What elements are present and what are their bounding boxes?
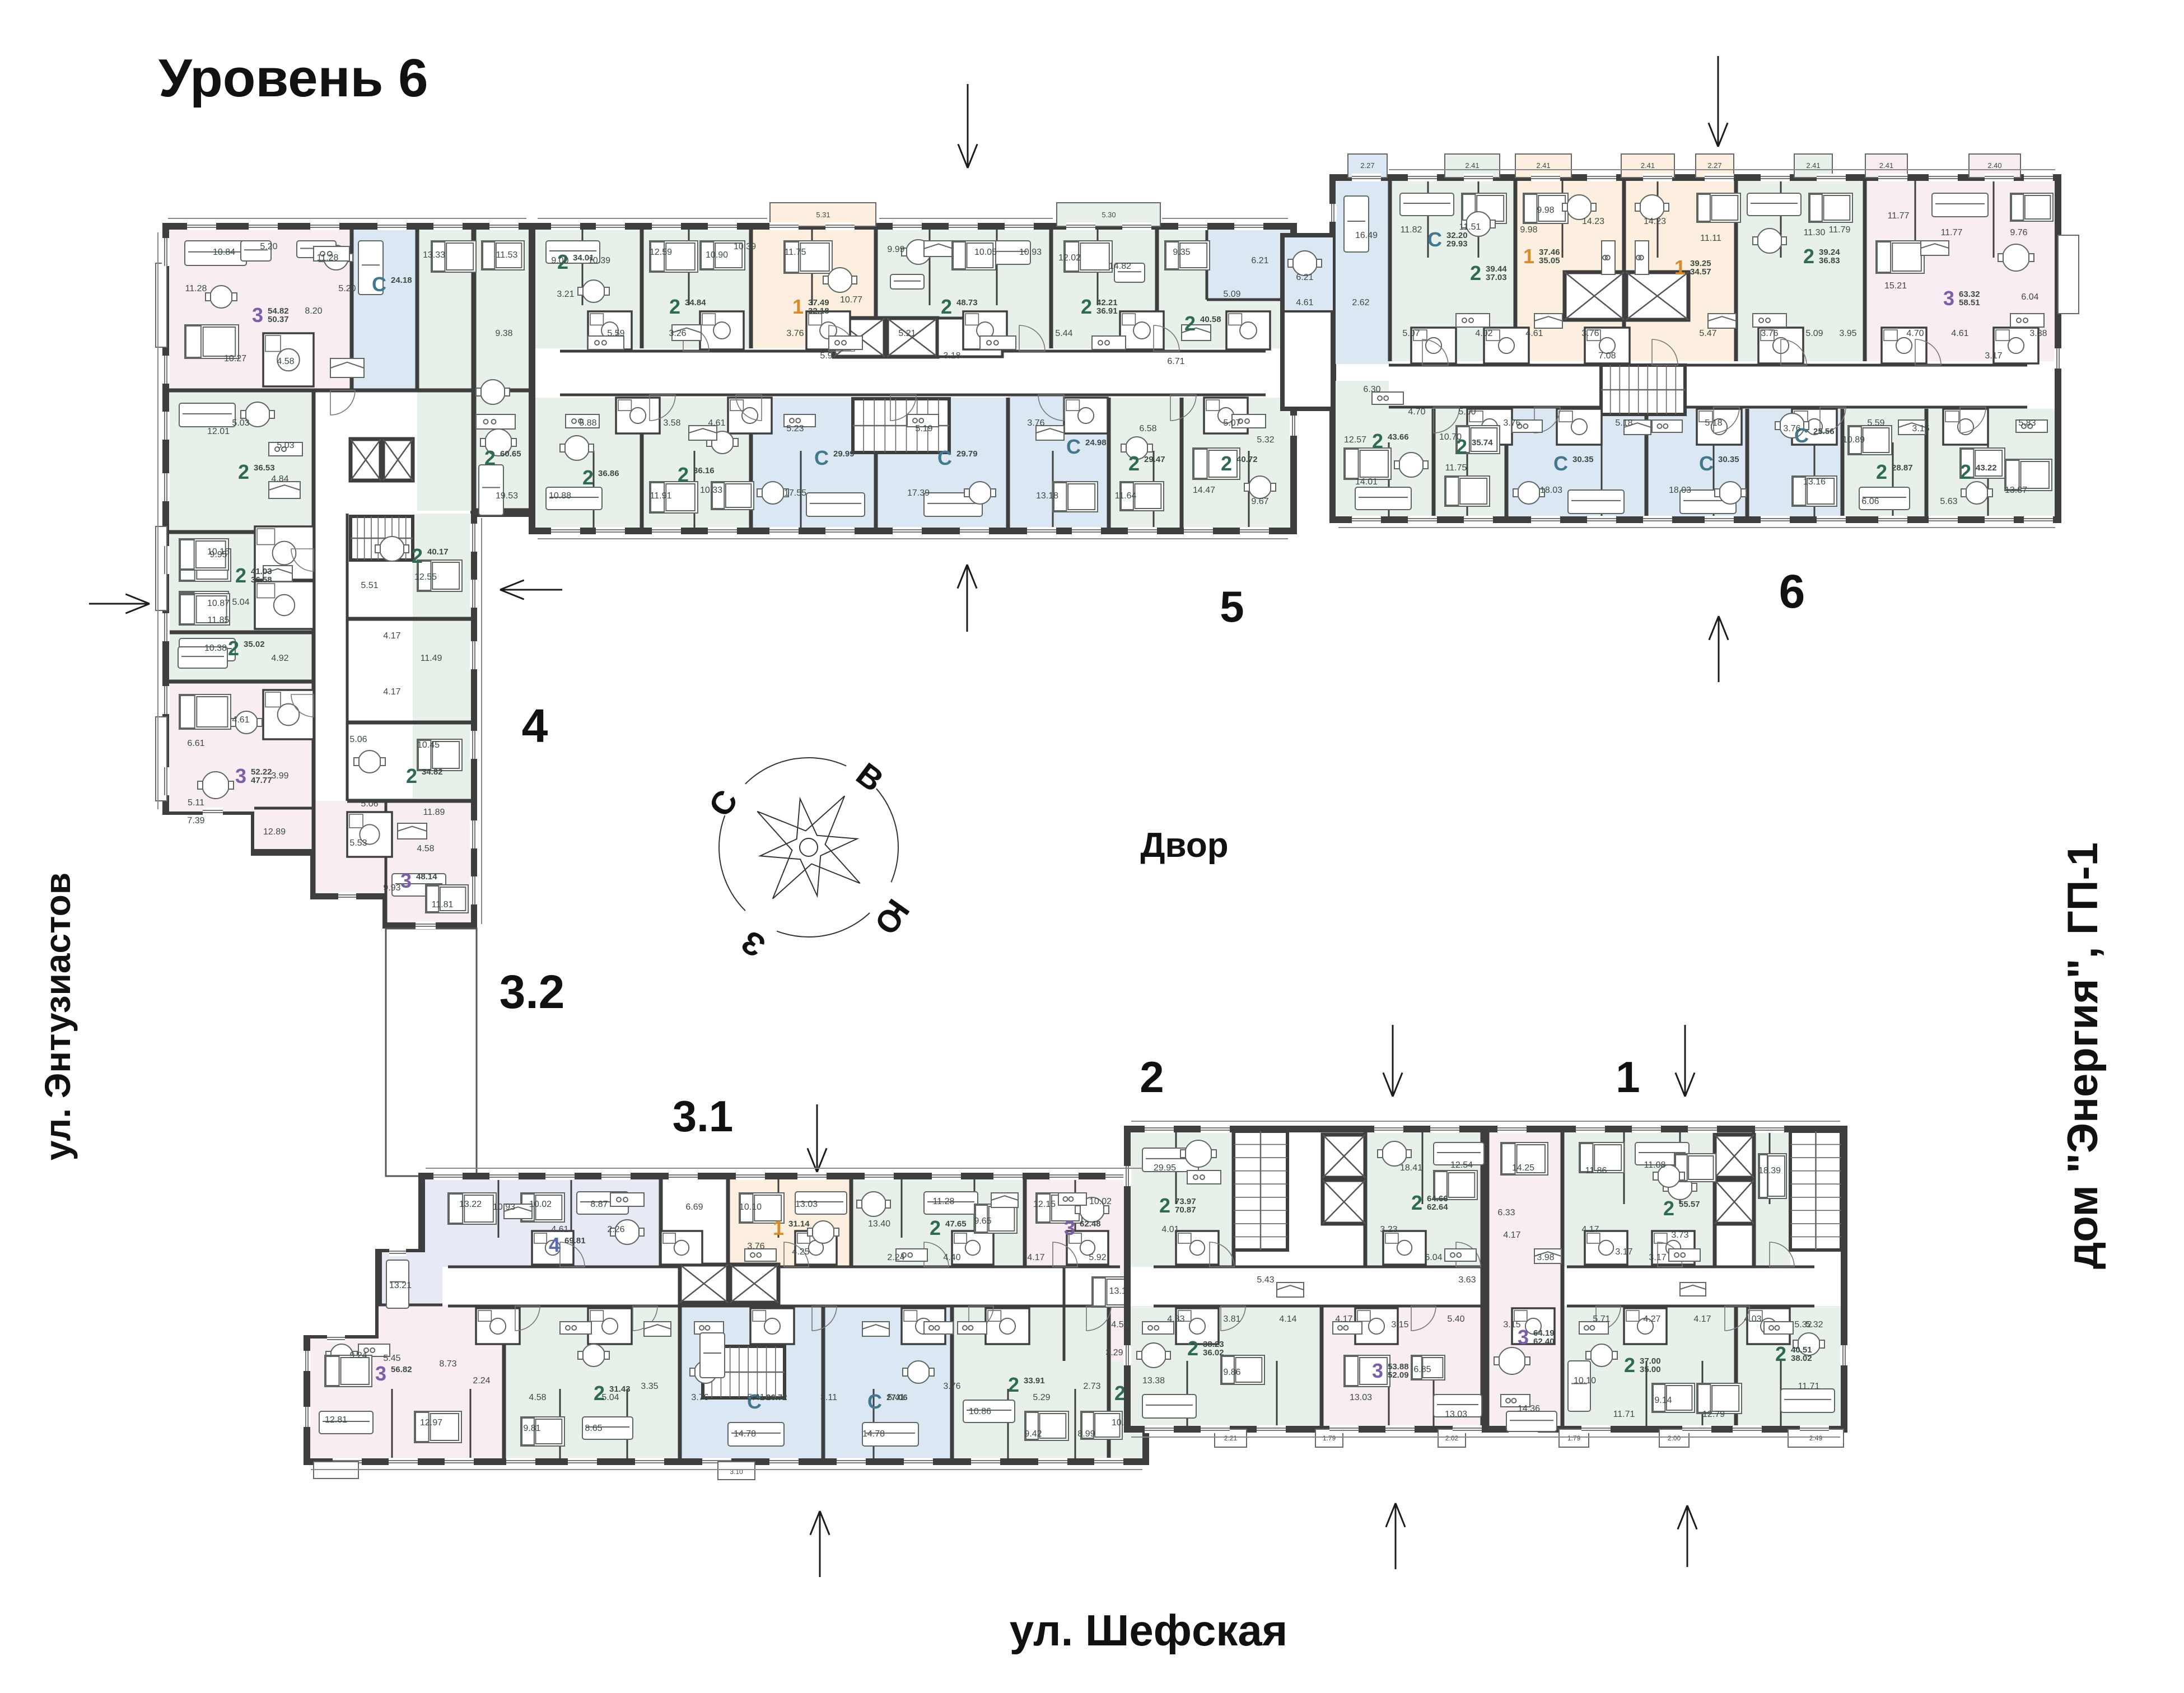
svg-text:11.08: 11.08 [1644, 1160, 1666, 1170]
svg-text:10.10: 10.10 [1574, 1376, 1596, 1386]
svg-text:11.28: 11.28 [185, 284, 207, 293]
svg-text:4.61: 4.61 [1296, 298, 1313, 307]
svg-text:4.61: 4.61 [551, 1225, 568, 1234]
svg-text:6.06: 6.06 [1861, 497, 1879, 506]
svg-text:9.86: 9.86 [1223, 1368, 1240, 1377]
svg-text:4.83: 4.83 [1167, 1314, 1184, 1324]
svg-text:1.79: 1.79 [1567, 1434, 1581, 1442]
svg-text:10.02: 10.02 [1089, 1197, 1112, 1206]
svg-text:2.27: 2.27 [1707, 161, 1721, 170]
svg-text:35.74: 35.74 [1472, 438, 1493, 447]
svg-text:10.93: 10.93 [493, 1202, 515, 1212]
svg-text:2.21: 2.21 [1224, 1434, 1238, 1442]
svg-text:1: 1 [1616, 1052, 1640, 1102]
svg-text:9.24: 9.24 [349, 1351, 367, 1360]
svg-text:9.81: 9.81 [523, 1424, 540, 1433]
svg-text:3.73: 3.73 [1671, 1230, 1688, 1240]
svg-text:2.02: 2.02 [1445, 1434, 1459, 1442]
svg-text:29.95: 29.95 [1154, 1163, 1176, 1173]
svg-text:48.73: 48.73 [956, 298, 978, 307]
svg-text:30.35: 30.35 [1718, 455, 1739, 464]
svg-text:3.76: 3.76 [691, 1393, 708, 1402]
svg-text:9.67: 9.67 [1251, 497, 1268, 506]
svg-text:2: 2 [1184, 312, 1196, 335]
svg-text:2: 2 [941, 295, 952, 318]
svg-text:12.54: 12.54 [1450, 1160, 1473, 1170]
svg-text:9.35: 9.35 [1173, 248, 1190, 257]
svg-text:18.03: 18.03 [1669, 486, 1691, 495]
svg-text:6.69: 6.69 [685, 1202, 703, 1212]
svg-text:11.75: 11.75 [1445, 463, 1467, 473]
svg-text:2.40: 2.40 [1987, 161, 2001, 170]
svg-text:6.21: 6.21 [1296, 273, 1313, 282]
svg-text:2: 2 [228, 637, 239, 660]
svg-text:11.11: 11.11 [1700, 234, 1721, 243]
svg-text:16.49: 16.49 [1355, 231, 1378, 240]
svg-text:5.71: 5.71 [1593, 1314, 1610, 1324]
svg-text:3.11: 3.11 [820, 1393, 837, 1402]
svg-text:10.84: 10.84 [213, 248, 235, 257]
svg-text:10.70: 10.70 [1439, 432, 1462, 442]
svg-text:40.58: 40.58 [1200, 315, 1221, 324]
svg-text:5.19: 5.19 [915, 424, 932, 433]
svg-text:10.38: 10.38 [204, 643, 227, 653]
svg-text:19.53: 19.53 [496, 491, 518, 501]
svg-text:4.70: 4.70 [1906, 329, 1924, 338]
svg-text:13.18: 13.18 [1036, 491, 1058, 501]
svg-text:9.93: 9.93 [383, 883, 400, 893]
svg-text:11.75: 11.75 [785, 248, 806, 257]
svg-text:13.03: 13.03 [1445, 1410, 1467, 1419]
svg-text:14.01: 14.01 [1355, 477, 1378, 487]
svg-text:2.24: 2.24 [887, 1253, 904, 1262]
svg-text:11.85: 11.85 [208, 615, 230, 625]
svg-text:40.72: 40.72 [1236, 455, 1258, 464]
svg-text:10.87: 10.87 [207, 599, 230, 608]
svg-text:2.41: 2.41 [1641, 161, 1655, 170]
svg-text:2.41: 2.41 [1536, 161, 1550, 170]
svg-text:2: 2 [930, 1216, 941, 1239]
svg-text:14.78: 14.78 [862, 1429, 885, 1439]
svg-text:3: 3 [375, 1362, 386, 1385]
svg-text:2: 2 [1775, 1342, 1786, 1365]
svg-text:25.56: 25.56 [1813, 427, 1835, 436]
svg-text:14.78: 14.78 [734, 1429, 756, 1439]
svg-text:5.53: 5.53 [349, 838, 367, 848]
svg-text:11.71: 11.71 [1613, 1410, 1635, 1419]
svg-text:35.00: 35.00 [1640, 1365, 1661, 1374]
svg-text:4.25: 4.25 [792, 1247, 809, 1257]
svg-text:2: 2 [582, 466, 594, 489]
svg-text:3.76: 3.76 [1503, 418, 1520, 428]
svg-text:13.22: 13.22 [459, 1200, 482, 1209]
svg-text:18.39: 18.39 [1758, 1166, 1781, 1176]
svg-text:3.2: 3.2 [500, 966, 565, 1018]
svg-text:5.18: 5.18 [1705, 418, 1722, 428]
svg-text:12.97: 12.97 [420, 1418, 442, 1428]
svg-text:5.32: 5.32 [1794, 1320, 1812, 1330]
svg-text:12.59: 12.59 [650, 248, 672, 257]
svg-text:ул. Шефская: ул. Шефская [1010, 1606, 1288, 1655]
svg-text:2: 2 [1411, 1191, 1422, 1214]
svg-text:8.65: 8.65 [585, 1424, 602, 1433]
svg-text:10.88: 10.88 [549, 491, 571, 501]
svg-text:36.58: 36.58 [251, 575, 272, 585]
svg-text:10.10: 10.10 [739, 1202, 762, 1212]
svg-text:3.15: 3.15 [1912, 424, 1929, 433]
svg-text:5.59: 5.59 [1867, 418, 1884, 428]
svg-text:5.18: 5.18 [1615, 418, 1632, 428]
svg-text:3.98: 3.98 [1537, 1253, 1554, 1262]
svg-text:5.45: 5.45 [383, 1354, 400, 1363]
svg-text:69.81: 69.81 [564, 1236, 586, 1246]
svg-text:С: С [1427, 228, 1442, 251]
svg-text:11.81: 11.81 [432, 900, 454, 910]
svg-text:34.84: 34.84 [685, 298, 706, 307]
svg-text:50.37: 50.37 [268, 315, 289, 324]
svg-text:5.04: 5.04 [601, 1393, 619, 1402]
svg-text:6.04: 6.04 [1425, 1253, 1442, 1262]
svg-text:12.89: 12.89 [263, 827, 286, 837]
svg-text:3.76: 3.76 [943, 1382, 960, 1391]
svg-text:5.03: 5.03 [232, 418, 249, 428]
svg-text:4.17: 4.17 [383, 631, 400, 641]
svg-text:5.40: 5.40 [1447, 1314, 1464, 1324]
svg-text:12.55: 12.55 [414, 572, 437, 582]
svg-text:36.83: 36.83 [1819, 256, 1840, 265]
svg-text:11.71: 11.71 [1798, 1382, 1820, 1391]
svg-text:36.02: 36.02 [1203, 1348, 1224, 1358]
svg-text:2: 2 [235, 564, 246, 587]
svg-text:47.65: 47.65 [945, 1219, 967, 1229]
svg-text:34.57: 34.57 [1690, 267, 1711, 277]
svg-text:56.82: 56.82 [391, 1365, 412, 1374]
svg-text:2: 2 [1960, 460, 1971, 483]
svg-text:5.06: 5.06 [361, 799, 378, 809]
svg-text:40.17: 40.17 [427, 547, 449, 557]
svg-text:12.81: 12.81 [325, 1415, 347, 1425]
svg-text:9.99: 9.99 [887, 245, 904, 254]
svg-text:С: С [867, 1390, 882, 1413]
svg-text:33.91: 33.91 [1024, 1376, 1045, 1386]
svg-text:5.20: 5.20 [338, 284, 356, 293]
svg-text:2: 2 [1008, 1373, 1019, 1396]
svg-text:4.40: 4.40 [943, 1253, 960, 1262]
svg-text:3.76: 3.76 [1761, 329, 1778, 338]
svg-text:3: 3 [235, 764, 246, 787]
svg-text:2.41: 2.41 [1806, 161, 1820, 170]
svg-text:3.15: 3.15 [1503, 1320, 1520, 1330]
svg-text:2: 2 [1187, 1337, 1198, 1360]
svg-text:4.17: 4.17 [1335, 1314, 1352, 1324]
svg-text:2.00: 2.00 [1668, 1434, 1681, 1442]
svg-text:6.58: 6.58 [1139, 424, 1156, 433]
svg-text:3.58: 3.58 [663, 418, 680, 428]
svg-text:11.91: 11.91 [650, 491, 672, 501]
svg-text:5.41: 5.41 [747, 1393, 764, 1402]
svg-text:2.27: 2.27 [1360, 161, 1374, 170]
svg-text:3.95: 3.95 [1839, 329, 1856, 338]
svg-text:11.64: 11.64 [1115, 491, 1137, 501]
svg-text:3.76: 3.76 [747, 1242, 764, 1251]
svg-text:2: 2 [238, 460, 249, 483]
svg-text:5.41: 5.41 [887, 1393, 904, 1402]
svg-text:1: 1 [1523, 245, 1534, 268]
svg-text:24.18: 24.18 [391, 276, 412, 285]
svg-text:11.28: 11.28 [933, 1197, 955, 1206]
svg-text:7.08: 7.08 [1598, 351, 1616, 361]
svg-text:4.61: 4.61 [1525, 329, 1543, 338]
svg-text:6.21: 6.21 [1251, 256, 1268, 265]
svg-text:8.73: 8.73 [439, 1359, 456, 1369]
svg-text:3.29: 3.29 [1105, 1348, 1123, 1358]
svg-text:5.31: 5.31 [816, 211, 830, 219]
svg-text:38.02: 38.02 [1791, 1354, 1812, 1363]
svg-text:3.63: 3.63 [1458, 1275, 1476, 1285]
svg-text:3.76: 3.76 [1783, 424, 1800, 433]
svg-text:35.05: 35.05 [1539, 256, 1560, 265]
svg-text:4.58: 4.58 [417, 844, 434, 854]
svg-text:60.65: 60.65 [500, 449, 521, 459]
svg-text:5.00: 5.00 [1458, 407, 1476, 417]
svg-text:18.41: 18.41 [1400, 1163, 1422, 1173]
svg-text:2.41: 2.41 [1879, 161, 1893, 170]
svg-text:6.71: 6.71 [1167, 357, 1184, 366]
svg-text:10.02: 10.02 [529, 1200, 552, 1209]
svg-text:12.02: 12.02 [1058, 253, 1081, 263]
svg-text:3.76: 3.76 [1027, 418, 1044, 428]
svg-text:3.17: 3.17 [1615, 1247, 1632, 1257]
svg-text:3: 3 [1064, 1216, 1075, 1239]
svg-text:3.76: 3.76 [786, 329, 804, 338]
svg-text:58.51: 58.51 [1959, 298, 1980, 307]
svg-text:6.85: 6.85 [1413, 1365, 1431, 1374]
svg-text:12.57: 12.57 [1344, 435, 1366, 445]
svg-text:5.43: 5.43 [1257, 1275, 1274, 1285]
svg-text:4.17: 4.17 [1581, 1225, 1599, 1234]
svg-text:5.07: 5.07 [1223, 418, 1240, 428]
svg-text:2.26: 2.26 [607, 1225, 624, 1234]
svg-text:5.09: 5.09 [1805, 329, 1823, 338]
svg-text:2: 2 [678, 463, 689, 486]
svg-text:3.1: 3.1 [673, 1092, 733, 1141]
svg-text:5.44: 5.44 [1055, 329, 1072, 338]
svg-text:3: 3 [400, 869, 412, 892]
svg-text:12.01: 12.01 [207, 427, 230, 436]
svg-text:4: 4 [549, 1233, 560, 1256]
svg-text:29.47: 29.47 [1144, 455, 1165, 464]
svg-text:2: 2 [1128, 452, 1140, 475]
svg-text:31.14: 31.14 [788, 1219, 810, 1229]
svg-text:5.92: 5.92 [1089, 1253, 1106, 1262]
svg-text:С: С [372, 273, 386, 296]
svg-text:Двор: Двор [1140, 826, 1228, 865]
svg-text:2: 2 [1140, 1052, 1164, 1102]
svg-text:4.61: 4.61 [232, 715, 249, 725]
svg-text:2: 2 [1372, 430, 1383, 453]
svg-text:5.21: 5.21 [898, 329, 916, 338]
svg-text:С: С [814, 446, 829, 469]
svg-text:2.62: 2.62 [1352, 298, 1369, 307]
svg-text:18.03: 18.03 [1540, 486, 1562, 495]
svg-text:29.93: 29.93 [1446, 239, 1468, 249]
svg-text:2: 2 [1624, 1354, 1635, 1377]
svg-text:5.11: 5.11 [188, 798, 204, 808]
svg-text:15.21: 15.21 [1884, 281, 1907, 291]
svg-text:5.29: 5.29 [1033, 1393, 1050, 1402]
svg-text:дом "Энергия", ГП-1: дом "Энергия", ГП-1 [2059, 842, 2107, 1269]
svg-text:10.05: 10.05 [974, 248, 997, 257]
svg-text:13.16: 13.16 [1803, 477, 1826, 487]
svg-text:14.25: 14.25 [1512, 1163, 1534, 1173]
svg-text:29.79: 29.79 [956, 449, 978, 459]
svg-text:4.14: 4.14 [1279, 1314, 1296, 1324]
svg-text:3.99: 3.99 [271, 771, 288, 781]
svg-text:11.79: 11.79 [1829, 225, 1851, 235]
svg-text:3.17: 3.17 [1985, 351, 2002, 361]
svg-text:9.65: 9.65 [974, 1216, 991, 1226]
svg-text:ул. Энтузиастов: ул. Энтузиастов [38, 873, 78, 1160]
svg-text:4.61: 4.61 [708, 418, 725, 428]
svg-text:10.77: 10.77 [840, 295, 862, 305]
svg-text:3: 3 [252, 304, 263, 327]
svg-text:36.86: 36.86 [598, 469, 619, 478]
svg-text:5.04: 5.04 [232, 598, 249, 607]
svg-text:3.15: 3.15 [1391, 1320, 1408, 1330]
svg-text:5.32: 5.32 [1257, 435, 1274, 445]
svg-text:14.36: 14.36 [1518, 1404, 1540, 1414]
svg-text:9.14: 9.14 [1654, 1396, 1672, 1405]
svg-text:2: 2 [406, 764, 417, 787]
svg-text:9.00: 9.00 [551, 256, 568, 265]
svg-text:17.55: 17.55 [784, 488, 806, 498]
svg-text:2: 2 [412, 544, 423, 567]
svg-text:С: С [937, 446, 952, 469]
svg-text:2: 2 [1114, 1382, 1126, 1405]
svg-text:2: 2 [1159, 1194, 1170, 1217]
svg-text:2: 2 [1876, 460, 1887, 483]
svg-text:43.66: 43.66 [1388, 432, 1409, 442]
svg-text:55.57: 55.57 [1679, 1200, 1700, 1209]
svg-text:2: 2 [1663, 1197, 1674, 1220]
svg-text:2.24: 2.24 [473, 1376, 490, 1386]
svg-text:2: 2 [484, 446, 496, 469]
svg-text:3.23: 3.23 [1380, 1225, 1397, 1234]
svg-text:4.27: 4.27 [1643, 1314, 1660, 1324]
svg-text:3.17: 3.17 [1649, 1253, 1666, 1262]
svg-text:11.49: 11.49 [421, 654, 442, 663]
svg-text:47.77: 47.77 [251, 776, 272, 785]
svg-text:11.86: 11.86 [1585, 1166, 1607, 1176]
svg-text:2: 2 [1470, 262, 1481, 285]
svg-text:5.07: 5.07 [1402, 329, 1420, 338]
svg-text:3.38: 3.38 [2029, 329, 2047, 338]
svg-text:2.41: 2.41 [1465, 161, 1479, 170]
svg-text:62.64: 62.64 [1427, 1202, 1448, 1212]
svg-text:2.73: 2.73 [1083, 1382, 1100, 1391]
svg-text:4.92: 4.92 [271, 654, 288, 663]
svg-text:10.27: 10.27 [224, 354, 246, 363]
svg-text:7.39: 7.39 [187, 816, 204, 825]
svg-text:11.30: 11.30 [1804, 228, 1826, 237]
svg-text:3.76: 3.76 [1581, 329, 1599, 338]
svg-text:10.90: 10.90 [706, 250, 728, 260]
svg-text:4.58: 4.58 [277, 357, 294, 366]
svg-text:5.88: 5.88 [579, 418, 596, 428]
svg-text:14.23: 14.23 [1644, 217, 1666, 226]
svg-text:10.33: 10.33 [700, 486, 722, 495]
svg-text:62.48: 62.48 [1080, 1219, 1101, 1229]
svg-text:3.35: 3.35 [641, 1382, 658, 1391]
svg-text:5.63: 5.63 [1940, 497, 1957, 506]
svg-text:13.38: 13.38 [1142, 1376, 1165, 1386]
svg-text:36.91: 36.91 [1096, 306, 1118, 316]
svg-text:4.17: 4.17 [1503, 1230, 1520, 1240]
svg-text:С: С [1553, 452, 1568, 475]
svg-text:10.89: 10.89 [1842, 435, 1865, 445]
svg-text:2: 2 [669, 295, 680, 318]
svg-text:11.51: 11.51 [1459, 222, 1481, 232]
svg-text:5.51: 5.51 [361, 581, 378, 590]
svg-text:1.79: 1.79 [1323, 1434, 1336, 1442]
svg-text:4.01: 4.01 [1161, 1225, 1179, 1234]
svg-text:14.23: 14.23 [1582, 217, 1604, 226]
svg-text:1: 1 [792, 295, 804, 318]
svg-text:11.28: 11.28 [317, 253, 339, 263]
svg-text:13.03: 13.03 [1350, 1393, 1372, 1402]
svg-text:9.76: 9.76 [2010, 228, 2027, 237]
svg-text:3: 3 [1943, 287, 1954, 310]
svg-text:6.30: 6.30 [1363, 385, 1380, 394]
svg-text:36.16: 36.16 [693, 466, 715, 475]
svg-text:26.72: 26.72 [766, 1393, 787, 1402]
svg-text:С: С [1699, 452, 1714, 475]
svg-text:10.39: 10.39 [588, 256, 610, 265]
svg-text:3.18: 3.18 [943, 351, 960, 361]
svg-text:5.06: 5.06 [349, 735, 367, 744]
svg-text:5.90: 5.90 [820, 351, 837, 361]
svg-text:6.61: 6.61 [187, 739, 204, 748]
svg-text:11.77: 11.77 [1941, 228, 1963, 237]
svg-text:13.87: 13.87 [2005, 486, 2027, 495]
svg-text:9.42: 9.42 [1024, 1429, 1042, 1439]
svg-text:24.98: 24.98 [1085, 438, 1107, 447]
svg-text:5.09: 5.09 [1223, 290, 1240, 299]
svg-text:48.14: 48.14 [416, 872, 437, 882]
svg-text:34.82: 34.82 [422, 767, 443, 777]
svg-text:32.18: 32.18 [808, 306, 829, 316]
svg-text:17.39: 17.39 [907, 488, 930, 498]
svg-text:1: 1 [773, 1216, 784, 1239]
svg-text:10.86: 10.86 [969, 1407, 991, 1416]
svg-text:4.17: 4.17 [383, 687, 400, 697]
svg-text:52.09: 52.09 [1388, 1370, 1409, 1380]
svg-text:5.20: 5.20 [260, 242, 277, 251]
svg-text:11.77: 11.77 [1888, 211, 1910, 221]
svg-text:10.93: 10.93 [1019, 248, 1042, 257]
svg-text:13.40: 13.40 [868, 1219, 890, 1229]
svg-text:6.04: 6.04 [2021, 292, 2038, 302]
svg-text:9.98: 9.98 [1520, 225, 1537, 235]
svg-text:5.59: 5.59 [607, 329, 624, 338]
svg-text:2: 2 [1081, 295, 1092, 318]
svg-text:10.39: 10.39 [734, 242, 756, 251]
svg-text:13.21: 13.21 [389, 1281, 412, 1290]
svg-text:Уровень 6: Уровень 6 [158, 48, 428, 108]
svg-text:8.99: 8.99 [1077, 1429, 1095, 1439]
svg-text:2: 2 [1221, 452, 1232, 475]
svg-text:9.38: 9.38 [495, 329, 512, 338]
